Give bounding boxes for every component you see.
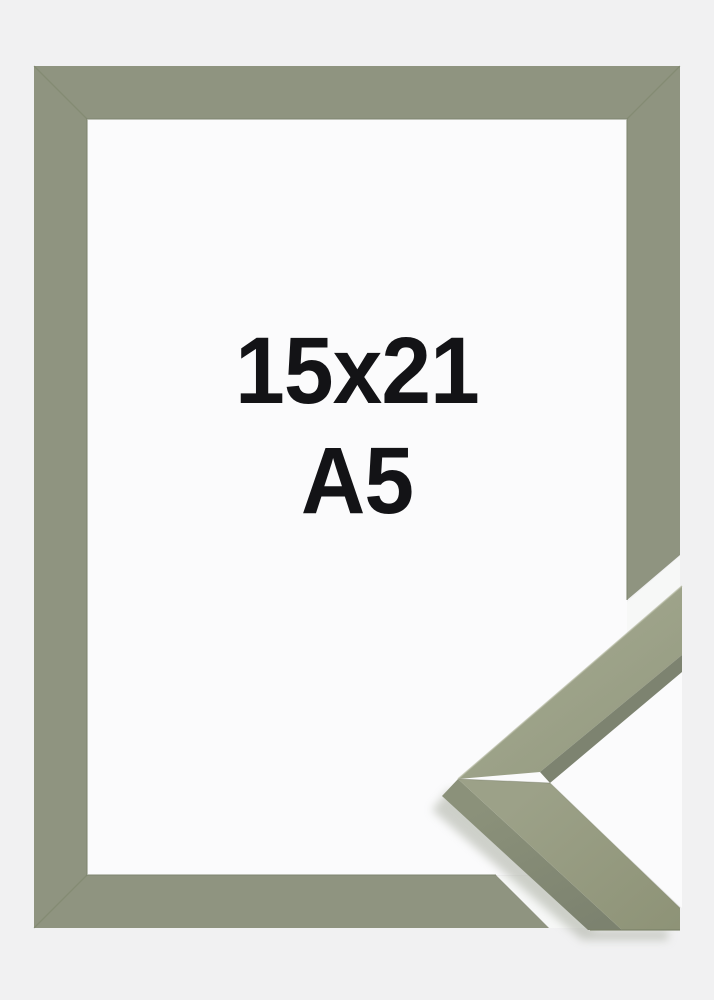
size-label-block: 15x21 A5: [21, 316, 692, 536]
paper-format-label: A5: [21, 426, 692, 536]
frame-product-image: 15x21 A5: [0, 0, 714, 1000]
frame-size-label: 15x21: [21, 316, 692, 426]
